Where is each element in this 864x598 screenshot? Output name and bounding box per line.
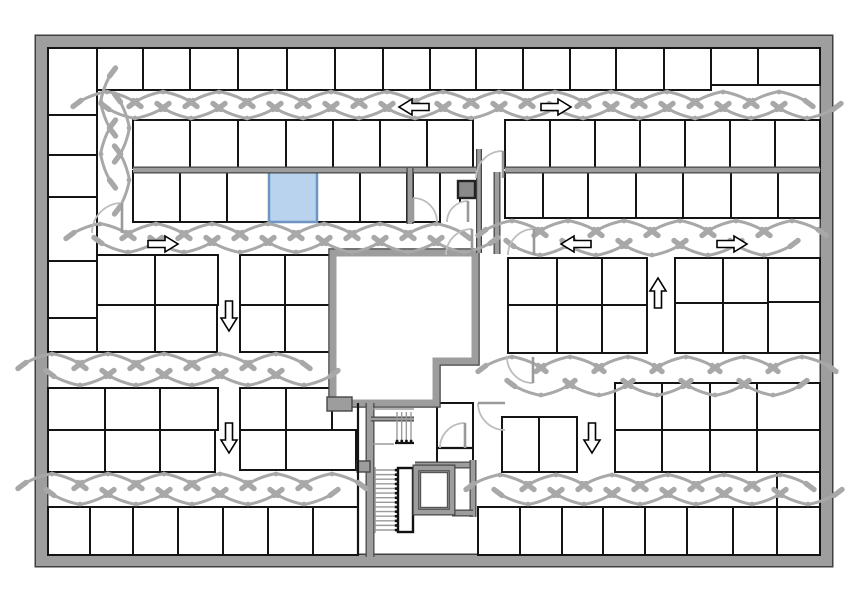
room xyxy=(190,48,238,90)
room xyxy=(539,417,577,472)
room xyxy=(685,120,730,168)
room xyxy=(616,48,664,90)
room xyxy=(155,255,218,305)
room xyxy=(240,305,285,352)
room xyxy=(550,120,595,168)
room xyxy=(97,255,155,305)
room xyxy=(133,171,180,222)
room xyxy=(427,120,473,168)
room xyxy=(285,305,330,352)
room xyxy=(758,48,820,85)
floor-plan xyxy=(0,0,864,598)
room xyxy=(775,120,820,168)
room xyxy=(523,48,570,90)
highlighted-room[interactable] xyxy=(269,171,317,222)
room xyxy=(430,48,476,90)
room xyxy=(723,258,768,303)
room xyxy=(48,261,97,318)
room xyxy=(675,303,723,353)
room xyxy=(97,48,143,90)
room xyxy=(155,305,217,352)
room xyxy=(190,120,238,168)
elevator-shaft xyxy=(416,468,452,512)
room xyxy=(777,507,820,555)
room xyxy=(615,430,662,472)
room xyxy=(723,303,768,353)
room xyxy=(662,430,710,472)
room xyxy=(602,305,647,353)
room xyxy=(227,171,269,222)
room xyxy=(543,172,588,218)
room xyxy=(287,48,335,90)
room xyxy=(90,507,133,555)
room xyxy=(223,507,268,555)
room xyxy=(285,255,330,305)
room xyxy=(313,507,358,555)
room xyxy=(562,507,603,555)
room xyxy=(731,172,778,218)
room xyxy=(333,120,380,168)
room xyxy=(520,507,562,555)
room xyxy=(105,430,160,472)
room xyxy=(505,172,543,218)
room xyxy=(478,507,520,555)
room xyxy=(505,120,550,168)
room xyxy=(675,258,723,303)
room xyxy=(687,507,733,555)
utility-box-icon xyxy=(458,181,475,198)
stair-landing-wall xyxy=(398,468,413,532)
room xyxy=(335,48,383,90)
room xyxy=(508,258,557,305)
room xyxy=(557,305,602,353)
room xyxy=(476,48,523,90)
room xyxy=(48,155,97,197)
room xyxy=(603,507,645,555)
room xyxy=(286,388,332,430)
room xyxy=(240,430,286,470)
room xyxy=(640,120,685,168)
room xyxy=(133,507,178,555)
room xyxy=(240,255,285,305)
room xyxy=(105,388,160,430)
room xyxy=(360,171,407,222)
room xyxy=(180,171,227,222)
room xyxy=(48,115,97,155)
room xyxy=(502,417,539,472)
room xyxy=(602,258,647,305)
room xyxy=(286,120,333,168)
room xyxy=(48,430,105,472)
room xyxy=(48,388,105,430)
room xyxy=(437,403,473,465)
room xyxy=(595,120,640,168)
room xyxy=(238,120,286,168)
room xyxy=(710,430,757,472)
room xyxy=(383,48,430,90)
room xyxy=(757,430,820,472)
room xyxy=(683,172,731,218)
room xyxy=(317,171,360,222)
room xyxy=(570,48,616,90)
room xyxy=(730,120,775,168)
room xyxy=(588,172,636,218)
room xyxy=(768,258,820,302)
room xyxy=(48,197,97,261)
room xyxy=(508,305,557,353)
room xyxy=(662,383,710,430)
floor-plan-svg xyxy=(0,0,864,598)
utility-box xyxy=(458,181,475,202)
room xyxy=(143,48,190,90)
room xyxy=(160,430,215,472)
room xyxy=(557,258,602,305)
room xyxy=(97,305,155,352)
room xyxy=(133,120,190,168)
room xyxy=(380,120,427,168)
room xyxy=(768,302,820,353)
room xyxy=(636,172,683,218)
room xyxy=(178,507,223,555)
room xyxy=(240,388,286,430)
room xyxy=(733,507,777,555)
room xyxy=(664,48,711,90)
room xyxy=(778,172,820,218)
room xyxy=(48,318,97,352)
room xyxy=(286,430,356,470)
room xyxy=(711,48,758,85)
room xyxy=(48,507,90,555)
room xyxy=(238,48,287,90)
room xyxy=(645,507,687,555)
room xyxy=(160,388,218,430)
room xyxy=(268,507,313,555)
